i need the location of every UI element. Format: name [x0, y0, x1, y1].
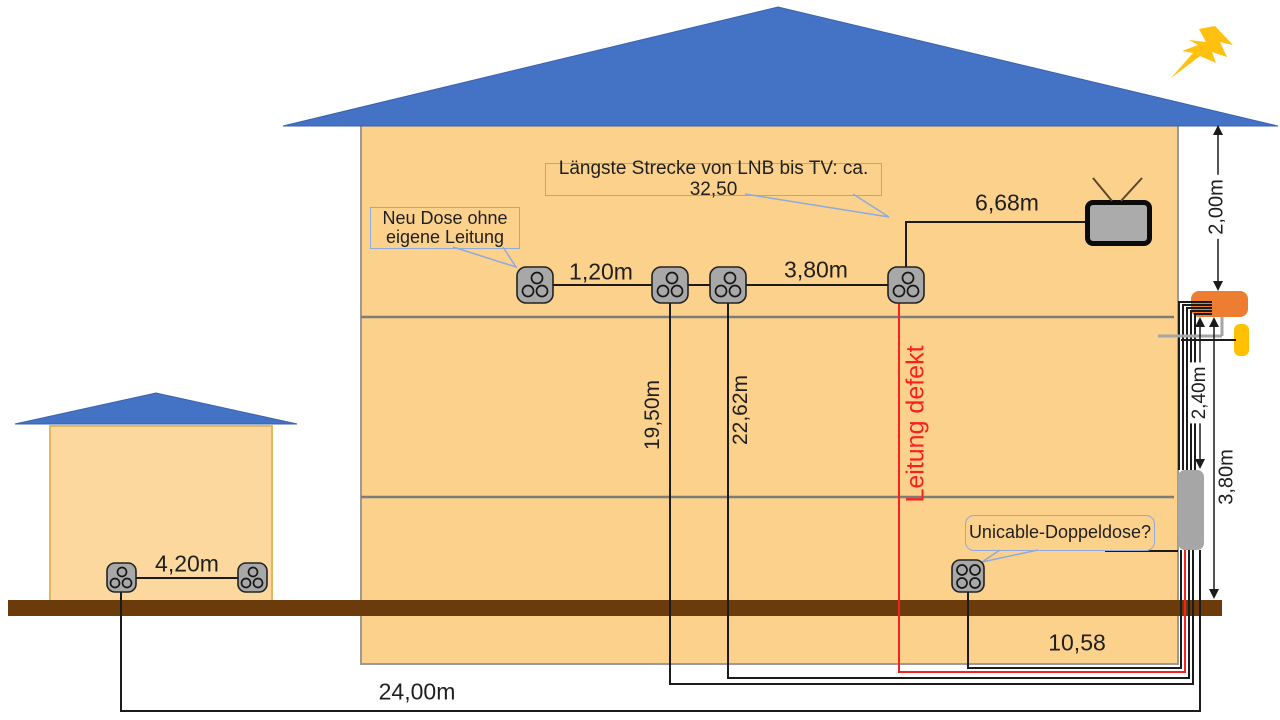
- tv-icon: [1085, 200, 1152, 246]
- callout-new-outlet: Neu Dose ohne eigene Leitung: [370, 207, 520, 249]
- callout-new-outlet-line2: eigene Leitung: [386, 227, 504, 247]
- cable-duct-box: [1178, 470, 1204, 550]
- label-24-00m: 24,00m: [379, 679, 456, 706]
- main-house-wall: [360, 120, 1179, 665]
- garage-roof: [15, 393, 297, 424]
- callout-longest-run: Längste Strecke von LNB bis TV: ca. 32,5…: [545, 163, 882, 196]
- callout-unicable: Unicable-Doppeldose?: [965, 515, 1155, 551]
- label-3-80m: 3,80m: [784, 257, 848, 284]
- label-22-62m: 22,62m: [729, 375, 753, 445]
- label-4-20m: 4,20m: [155, 551, 219, 578]
- multiswitch-box: [1191, 291, 1248, 317]
- power-inserter-box: [1234, 324, 1249, 356]
- wiring-diagram: 1,20m 3,80m 6,68m 4,20m 24,00m 10,58 19,…: [0, 0, 1280, 720]
- callout-new-outlet-line1: Neu Dose ohne: [382, 208, 507, 228]
- label-6-68m: 6,68m: [975, 190, 1039, 217]
- lightning-icon: [1171, 26, 1233, 78]
- label-2-40m: 2,40m: [1188, 363, 1212, 424]
- label-3-80m-height: 3,80m: [1216, 449, 1239, 505]
- label-2-00m: 2,00m: [1205, 175, 1230, 239]
- label-1-20m: 1,20m: [569, 259, 633, 286]
- label-10-58: 10,58: [1048, 630, 1106, 657]
- callout-longest-run-text: Längste Strecke von LNB bis TV: ca. 32,5…: [546, 159, 881, 200]
- label-leitung-defekt: Leitung defekt: [902, 345, 931, 502]
- ground-bar: [8, 600, 1222, 616]
- label-19-50m: 19,50m: [641, 380, 665, 450]
- callout-unicable-text: Unicable-Doppeldose?: [969, 523, 1151, 542]
- callout-new-outlet-text: Neu Dose ohne eigene Leitung: [382, 209, 507, 248]
- main-roof: [283, 7, 1278, 126]
